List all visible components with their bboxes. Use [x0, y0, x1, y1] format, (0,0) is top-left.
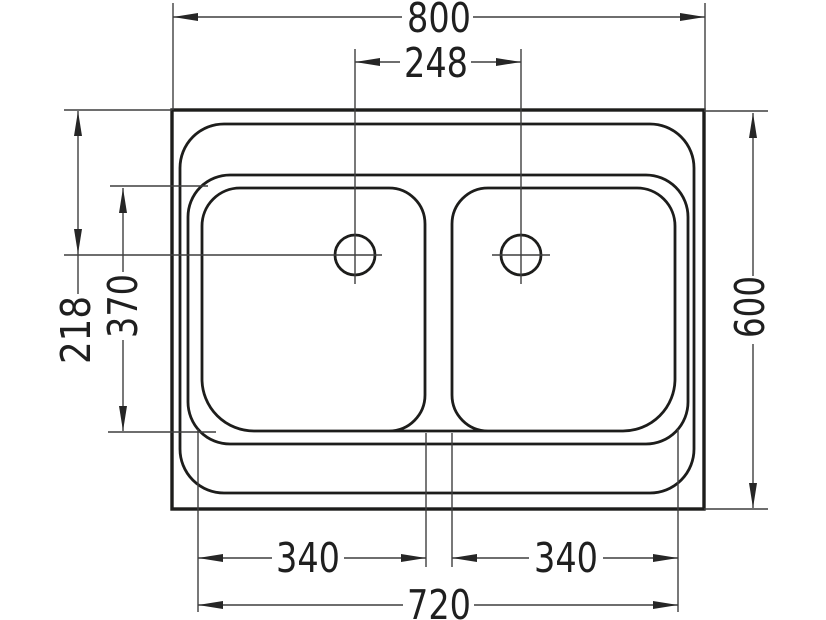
dim-bowl-depth: 370 — [99, 186, 216, 432]
arrowhead-up — [749, 113, 757, 138]
drawing-canvas: 800 248 218 370 600 — [0, 0, 826, 620]
arrowhead-left — [452, 554, 477, 562]
dim-left-bowl-width: 340 — [198, 429, 426, 612]
dim-label-bowls-outer-span: 720 — [407, 581, 471, 620]
left-faucet-hole — [64, 235, 382, 275]
dim-label-overall-depth: 600 — [726, 276, 774, 338]
sink-rim-inner-edge — [180, 124, 694, 493]
dim-label-right-bowl-width: 340 — [534, 534, 598, 582]
bowls-inner-outline — [202, 188, 675, 431]
dim-overall-depth: 600 — [704, 111, 774, 509]
dim-label-edge-to-hole-center: 218 — [52, 296, 100, 364]
arrowhead-down — [74, 229, 82, 254]
arrowhead-left — [355, 58, 380, 66]
dim-hole-spacing: 248 — [355, 39, 521, 284]
arrowhead-right — [653, 601, 678, 609]
bowls-outer-contour — [188, 175, 688, 444]
dim-right-bowl-width: 340 — [452, 429, 678, 612]
arrowhead-right — [680, 13, 705, 21]
arrowhead-right — [401, 554, 426, 562]
arrowhead-down — [119, 406, 127, 431]
dim-label-bowl-depth: 370 — [99, 274, 147, 338]
arrowhead-left — [173, 13, 198, 21]
sink-outline — [64, 110, 704, 509]
arrowhead-right — [496, 58, 521, 66]
dim-label-overall-width: 800 — [407, 0, 471, 42]
arrowhead-up — [74, 111, 82, 136]
arrowhead-left — [198, 554, 223, 562]
dim-label-hole-spacing: 248 — [404, 39, 468, 87]
arrowhead-left — [198, 601, 223, 609]
dim-label-left-bowl-width: 340 — [276, 534, 340, 582]
sink-outer-edge — [172, 110, 704, 509]
dim-bowls-outer-span: 720 — [198, 581, 678, 620]
arrowhead-down — [749, 483, 757, 508]
sink-technical-drawing: 800 248 218 370 600 — [0, 0, 826, 620]
arrowhead-up — [119, 188, 127, 213]
arrowhead-right — [653, 554, 678, 562]
